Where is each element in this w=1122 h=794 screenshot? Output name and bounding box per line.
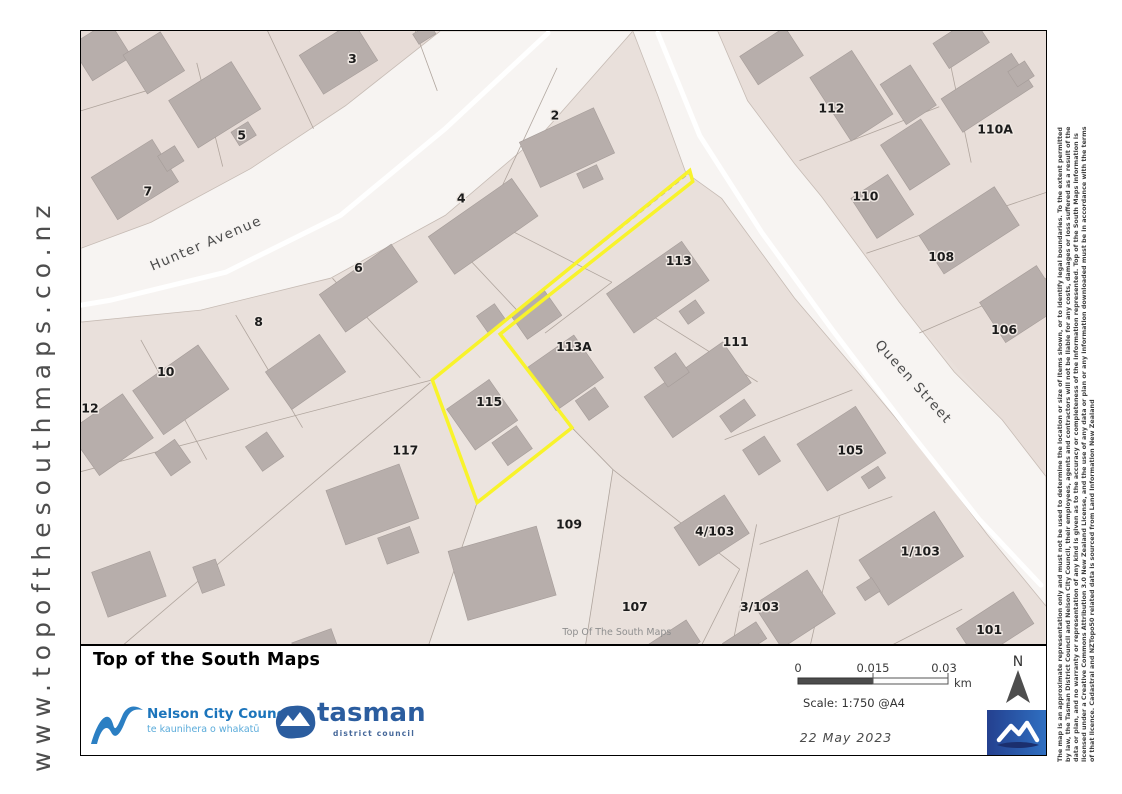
- scale-unit: km: [954, 676, 972, 690]
- parcel-label: 4: [457, 190, 466, 205]
- parcel-label: 112: [818, 101, 844, 116]
- parcel-label: 111: [723, 334, 749, 349]
- map-canvas: Hunter AvenueQueen Street 35724681012117…: [80, 30, 1047, 645]
- page: www.topofthesouthmaps.co.nz The map is a…: [0, 0, 1122, 794]
- parcel-label: 3/103: [740, 599, 779, 614]
- scale-tick-end: 0.03: [931, 661, 957, 675]
- parcel-label: 2: [551, 108, 560, 123]
- parcel-label: 110A: [977, 122, 1013, 137]
- parcel-label: 109: [556, 516, 582, 531]
- disclaimer-line: The map is an approximate representation…: [1056, 30, 1064, 762]
- top-of-south-logo: [987, 710, 1046, 755]
- parcel-label: 5: [237, 128, 246, 143]
- disclaimer-line: licensed under a Creative Commons Attrib…: [1080, 30, 1088, 762]
- scale-tick-mid: 0.015: [857, 661, 890, 675]
- parcel-label: 3: [348, 51, 357, 66]
- parcel-label: 10: [157, 364, 175, 379]
- parcel-label: 4/103: [695, 523, 734, 538]
- north-label: N: [1013, 654, 1023, 670]
- disclaimer-line: by law, the Tasman District Council and …: [1064, 30, 1072, 762]
- parcel-label: 8: [254, 314, 263, 329]
- disclaimer-line: data or plan, and no warranty or represe…: [1072, 30, 1080, 762]
- parcel-label: 115: [476, 394, 502, 409]
- parcel-label: 110: [852, 188, 878, 203]
- parcel-label: 6: [354, 260, 363, 275]
- website-vertical-text: www.topofthesouthmaps.co.nz: [27, 27, 61, 772]
- parcel-label: 7: [144, 183, 153, 198]
- footer-graphics: 0 0.015 0.03 km N: [81, 646, 1046, 755]
- map-watermark: Top Of The South Maps: [561, 627, 671, 638]
- parcel-label: 113: [666, 253, 692, 268]
- parcel-label: 12: [81, 401, 98, 416]
- parcel-label: 107: [622, 599, 648, 614]
- disclaimer-text: The map is an approximate representation…: [1056, 30, 1096, 762]
- parcel-label: 1/103: [901, 543, 940, 558]
- parcel-label: 101: [976, 622, 1002, 637]
- footer-panel: Top of the South Maps Nelson City Counci…: [80, 645, 1047, 756]
- parcel-label: 108: [928, 249, 954, 264]
- parcel-label: 105: [837, 443, 863, 458]
- map-svg: Hunter AvenueQueen Street 35724681012117…: [81, 31, 1046, 644]
- parcel-label: 106: [991, 322, 1017, 337]
- parcel-label: 117: [392, 443, 418, 458]
- scale-bar: 0 0.015 0.03 km: [794, 661, 972, 690]
- scale-tick-zero: 0: [794, 661, 801, 675]
- parcel-label: 113A: [556, 339, 592, 354]
- disclaimer-line: of that licence. Cadastral and NZTopo50 …: [1088, 30, 1096, 762]
- north-arrow: N: [1006, 654, 1030, 703]
